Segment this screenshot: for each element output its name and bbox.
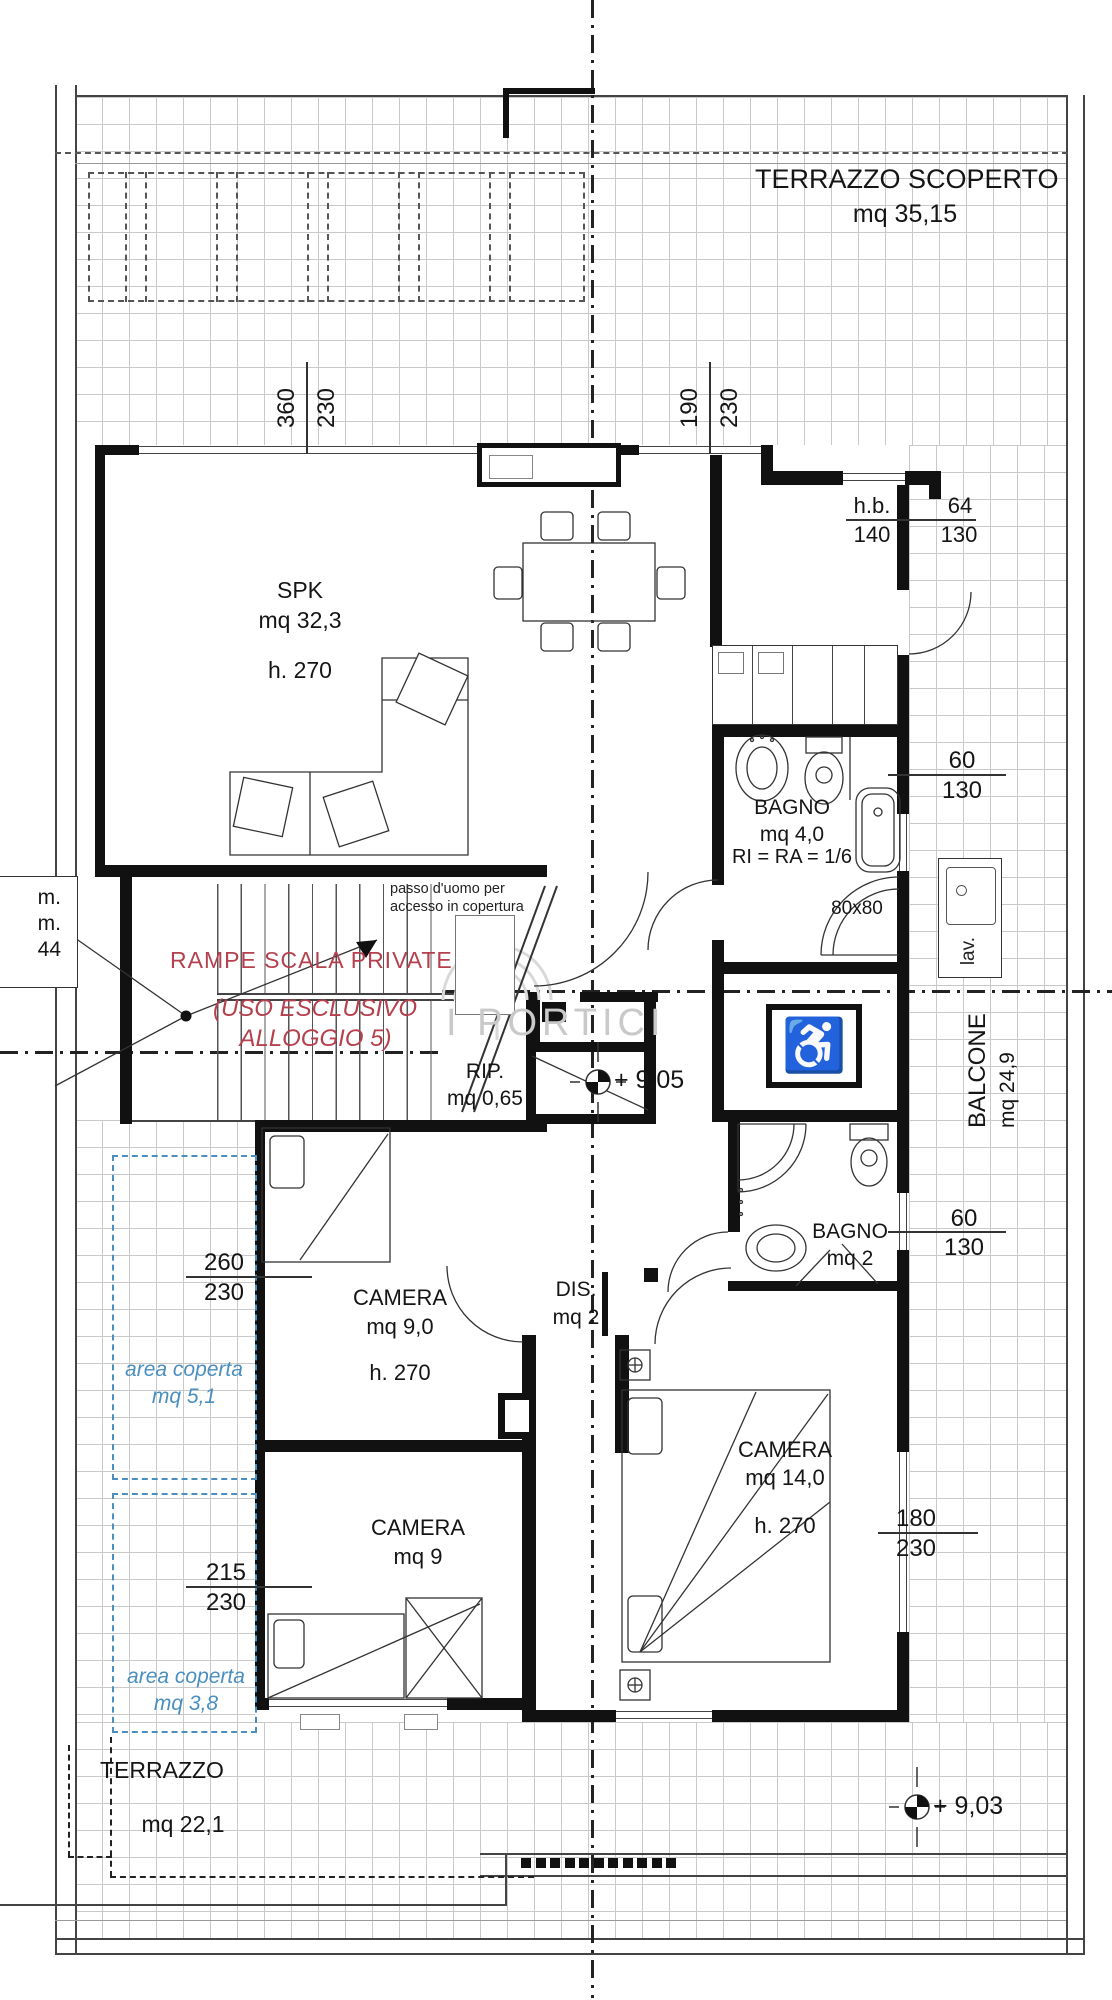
boundary-line [55,1953,1085,1955]
room-label-bagno4: BAGNO mq 4,0 [742,796,842,846]
sofa [230,653,468,855]
room-label-dis: DIS. mq 2 [546,1278,606,1329]
washing-machine: lav. [938,858,1002,978]
stair-note-box: m. m. 44 [0,876,78,988]
pergola-beam [489,172,491,302]
stair-note-line: m. [0,885,61,911]
pergola-beam [398,172,400,302]
dimension-window-190: 190 230 [676,362,744,454]
room-label-camera14: CAMERA mq 14,0 h. 270 [725,1438,845,1539]
door-arc-bagno4 [648,880,718,950]
roof-projection-dashed-line [55,152,1068,154]
wheelchair-accessible-icon: ♿ [782,1020,847,1072]
stair-private-note: (USO ESCLUSIVO [200,996,430,1023]
covered-area-outline-1 [112,1155,257,1480]
pergola-beam [418,172,420,302]
watermark-text: I PORTICI [446,1002,666,1045]
elevator-cab: ♿ [766,1004,862,1088]
stair-note-line: 44 [0,937,61,963]
stair-private-note: ALLOGGIO 5) [218,1026,413,1053]
pergola-beam [236,172,238,302]
elevation-label-905: + 9,05 [614,1066,734,1094]
terrace-open-label: TERRAZZO SCOPERTO mq 35,15 [755,164,1055,228]
room-label-spk: SPK mq 32,3 h. 270 [240,578,360,683]
bagno4-ventilation-note: RI = RA = 1/6 [712,846,872,868]
terrace-dashed-boundary [68,1745,70,1857]
pergola-beam [327,172,329,302]
window-camera2-terrace [269,1699,447,1707]
roof-hatch-box [455,915,515,1015]
boundary-line [75,85,77,1953]
wardrobe-pier [498,1393,536,1439]
room-label-balcone: BALCONE mq 24,9 [960,988,1024,1128]
floor-plan: ♿ lav. m. m. 44 TERRAZZO SCOPERTO mq 35,… [0,0,1112,2000]
boundary-line [75,95,1066,97]
pergola-beam [145,172,147,302]
stair-private-note: RAMPE SCALA PRIVATE [170,948,450,974]
boundary-line [55,1938,1085,1940]
stair-note-line: m. [0,911,61,937]
shower-size-label: 80x80 [822,898,892,919]
window-60-bagno4 [899,814,907,871]
terrace-dashed-boundary [110,1876,534,1878]
elevation-label-903: + 9,03 [933,1792,1043,1820]
window-hb-64 [843,473,905,481]
dining-table [494,512,685,651]
bed-camera1 [262,1128,390,1262]
pergola-beam [307,172,309,302]
room-label-bagno2: BAGNO mq 2 [795,1220,905,1270]
pergola-beam [509,172,511,302]
room-label-terrazzo: TERRAZZO [100,1758,260,1784]
washing-machine-label: lav. [939,925,999,977]
room-label-rip: RIP. mq 0,65 [440,1060,530,1110]
boundary-line [55,85,57,1953]
roof-step-line [503,88,595,94]
dimension-window-360: 360 230 [273,362,341,454]
window-camera14-terrace [616,1711,712,1719]
terrace-dashed-boundary [68,1856,112,1858]
roof-step-line [503,88,509,138]
room-label-camera2: CAMERA mq 9 [368,1516,468,1569]
pergola-beam [125,172,127,302]
roof-access-note: passo d'uomo per accesso in copertura [390,880,560,916]
door-arc-bagno2 [668,1232,728,1292]
stair-reference-dot [181,1011,192,1022]
boundary-line [1066,95,1068,1955]
boundary-line [1083,95,1085,1955]
pergola-beam [216,172,218,302]
bed-camera2 [268,1598,482,1698]
room-label-camera1: CAMERA mq 9,0 h. 270 [340,1286,460,1386]
covered-area-label-2: area coperta mq 3,8 [110,1665,262,1715]
room-label-terrazzo-area: mq 22,1 [128,1812,238,1838]
covered-area-label-1: area coperta mq 5,1 [108,1358,260,1408]
railing-post-row [521,1858,683,1871]
